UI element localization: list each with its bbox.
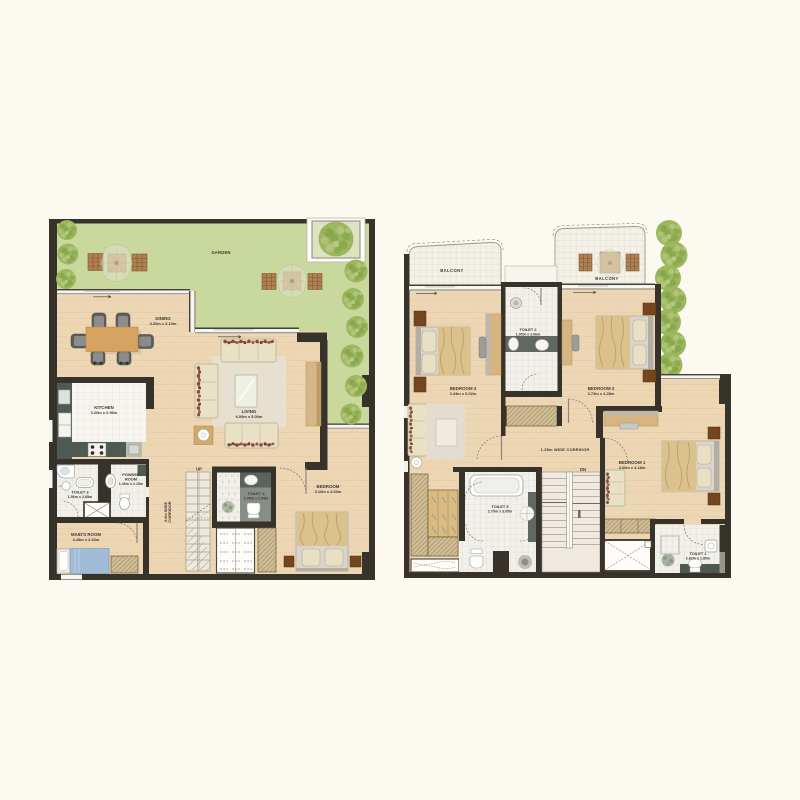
svg-text:GARDEN: GARDEN — [211, 250, 230, 255]
svg-text:TOILET 4: TOILET 4 — [247, 491, 265, 496]
svg-text:TOILET 5: TOILET 5 — [491, 504, 509, 509]
svg-text:UP: UP — [196, 467, 202, 472]
svg-text:2.70m x 3.05m: 2.70m x 3.05m — [488, 510, 512, 514]
svg-text:ROOM: ROOM — [125, 477, 137, 482]
svg-text:TOILET 2: TOILET 2 — [519, 327, 537, 332]
svg-text:4.20m x 3.10m: 4.20m x 3.10m — [150, 321, 177, 326]
svg-text:TOILET 1: TOILET 1 — [689, 551, 707, 556]
svg-text:3.73m x 4.28m: 3.73m x 4.28m — [588, 391, 615, 396]
svg-text:3.10m x 3.63m: 3.10m x 3.63m — [315, 489, 342, 494]
svg-text:2.0m WIDECORRIDOR: 2.0m WIDECORRIDOR — [163, 501, 172, 522]
svg-text:1.96m x 2.85m: 1.96m x 2.85m — [68, 495, 92, 499]
svg-text:2.62m x 1.80m: 2.62m x 1.80m — [686, 557, 710, 561]
svg-text:3.44m x 5.02m: 3.44m x 5.02m — [450, 391, 477, 396]
svg-text:BALCONY: BALCONY — [440, 268, 464, 273]
svg-text:2.05m x 2.04m: 2.05m x 2.04m — [244, 497, 268, 501]
svg-text:1.35m WIDE CORRIDOR: 1.35m WIDE CORRIDOR — [541, 447, 590, 452]
svg-text:4.00m x 4.18m: 4.00m x 4.18m — [619, 465, 646, 470]
svg-text:BALCONY: BALCONY — [595, 276, 619, 281]
svg-text:3.20m x 2.96m: 3.20m x 2.96m — [91, 410, 118, 415]
svg-text:TOILET 3: TOILET 3 — [71, 490, 89, 495]
svg-text:6.00m x 5.00m: 6.00m x 5.00m — [236, 414, 263, 419]
svg-text:3.28m x 2.63m: 3.28m x 2.63m — [73, 537, 100, 542]
svg-text:DN: DN — [580, 467, 586, 472]
svg-text:1.95m x 3.06m: 1.95m x 3.06m — [516, 333, 540, 337]
svg-text:1.46m x 2.15m: 1.46m x 2.15m — [119, 482, 143, 486]
